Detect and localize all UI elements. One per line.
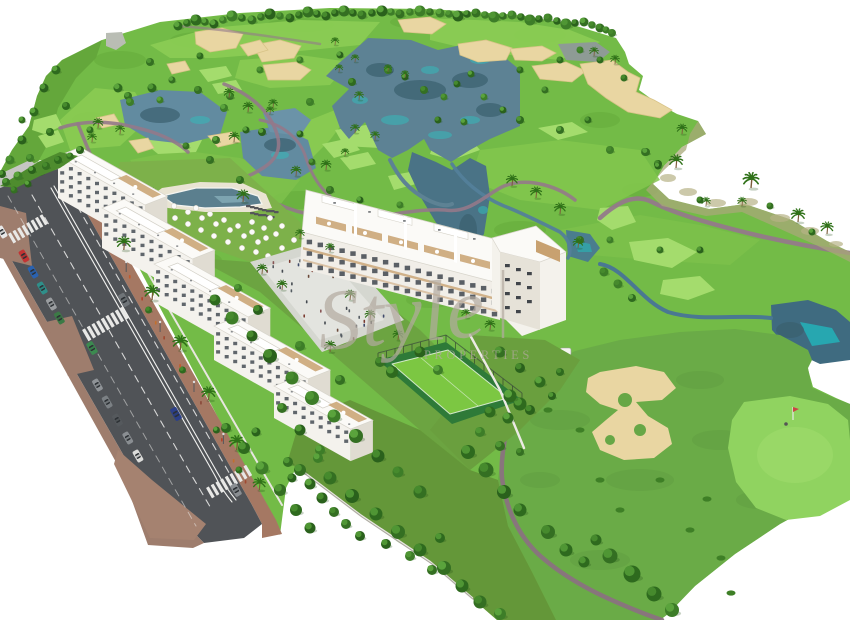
svg-text:PROPERTIES: PROPERTIES: [424, 348, 533, 362]
